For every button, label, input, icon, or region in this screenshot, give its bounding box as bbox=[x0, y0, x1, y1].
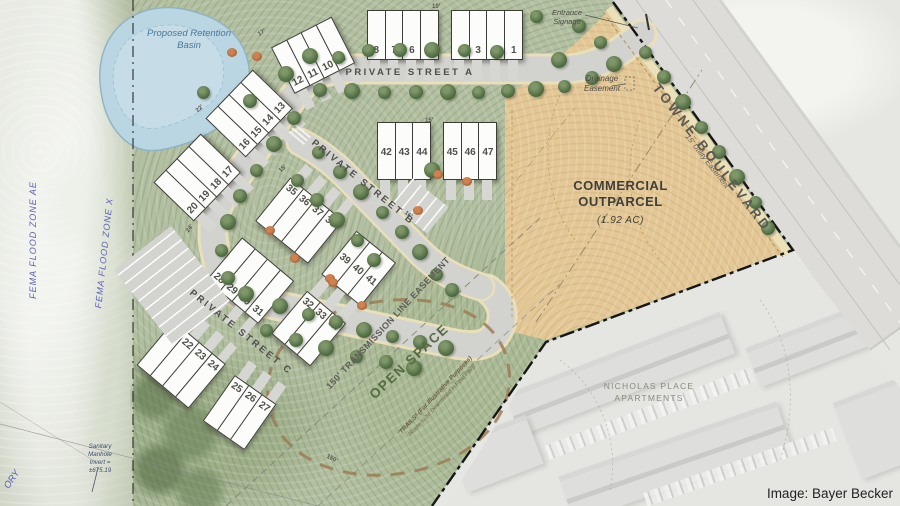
trails-note-label: TRAILS* (For Illustrative Purposes) (Rou… bbox=[374, 329, 506, 469]
dimension-label: 17' bbox=[257, 28, 267, 37]
drainage-easement-label: Drainage Easement bbox=[570, 74, 634, 94]
sanitary-manhole-note: Sanitary Manhole Invert = ±675.19 bbox=[80, 443, 120, 475]
entrance-signage-label: Entrance Signage bbox=[538, 8, 596, 27]
apartments-label: NICHOLAS PLACE APARTMENTS bbox=[590, 381, 708, 405]
image-credit: Image: Bayer Becker bbox=[767, 486, 893, 501]
commercial-outparcel-label: COMMERCIAL OUTPARCEL (1.92 AC) bbox=[538, 178, 703, 227]
dimension-label: 10' bbox=[432, 4, 440, 10]
street-b-label: PRIVATE STREET B bbox=[308, 137, 418, 229]
dimension-label: 24' bbox=[185, 224, 195, 234]
retention-basin-label: Proposed Retention Basin bbox=[146, 28, 232, 53]
site-plan-map: 4321876512111091615141320191817212223242… bbox=[0, 0, 900, 506]
dimension-label: 15' bbox=[278, 164, 288, 174]
fema-zone-ae-label: FEMA FLOOD ZONE AE bbox=[28, 150, 38, 330]
labels-layer: Proposed Retention Basin PRIVATE STREET … bbox=[0, 0, 900, 506]
street-c-label: PRIVATE STREET C bbox=[186, 287, 296, 379]
fema-zone-x-label: FEMA FLOOD ZONE X bbox=[90, 163, 119, 343]
dimension-label: 150' bbox=[325, 454, 338, 465]
dimension-label: 22' bbox=[195, 104, 205, 114]
street-a-label: PRIVATE STREET A bbox=[325, 67, 495, 78]
dimension-label: 15' bbox=[425, 118, 433, 124]
cutoff-text-fragment: ORY bbox=[2, 468, 22, 491]
